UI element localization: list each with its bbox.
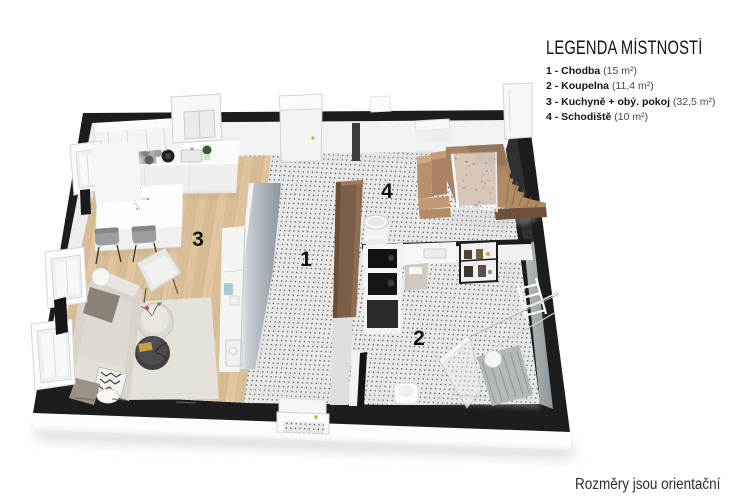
svg-text:1: 1 (300, 248, 312, 271)
svg-text:2: 2 (413, 327, 425, 350)
svg-text:4: 4 (381, 180, 393, 203)
svg-text:3: 3 (192, 228, 204, 251)
